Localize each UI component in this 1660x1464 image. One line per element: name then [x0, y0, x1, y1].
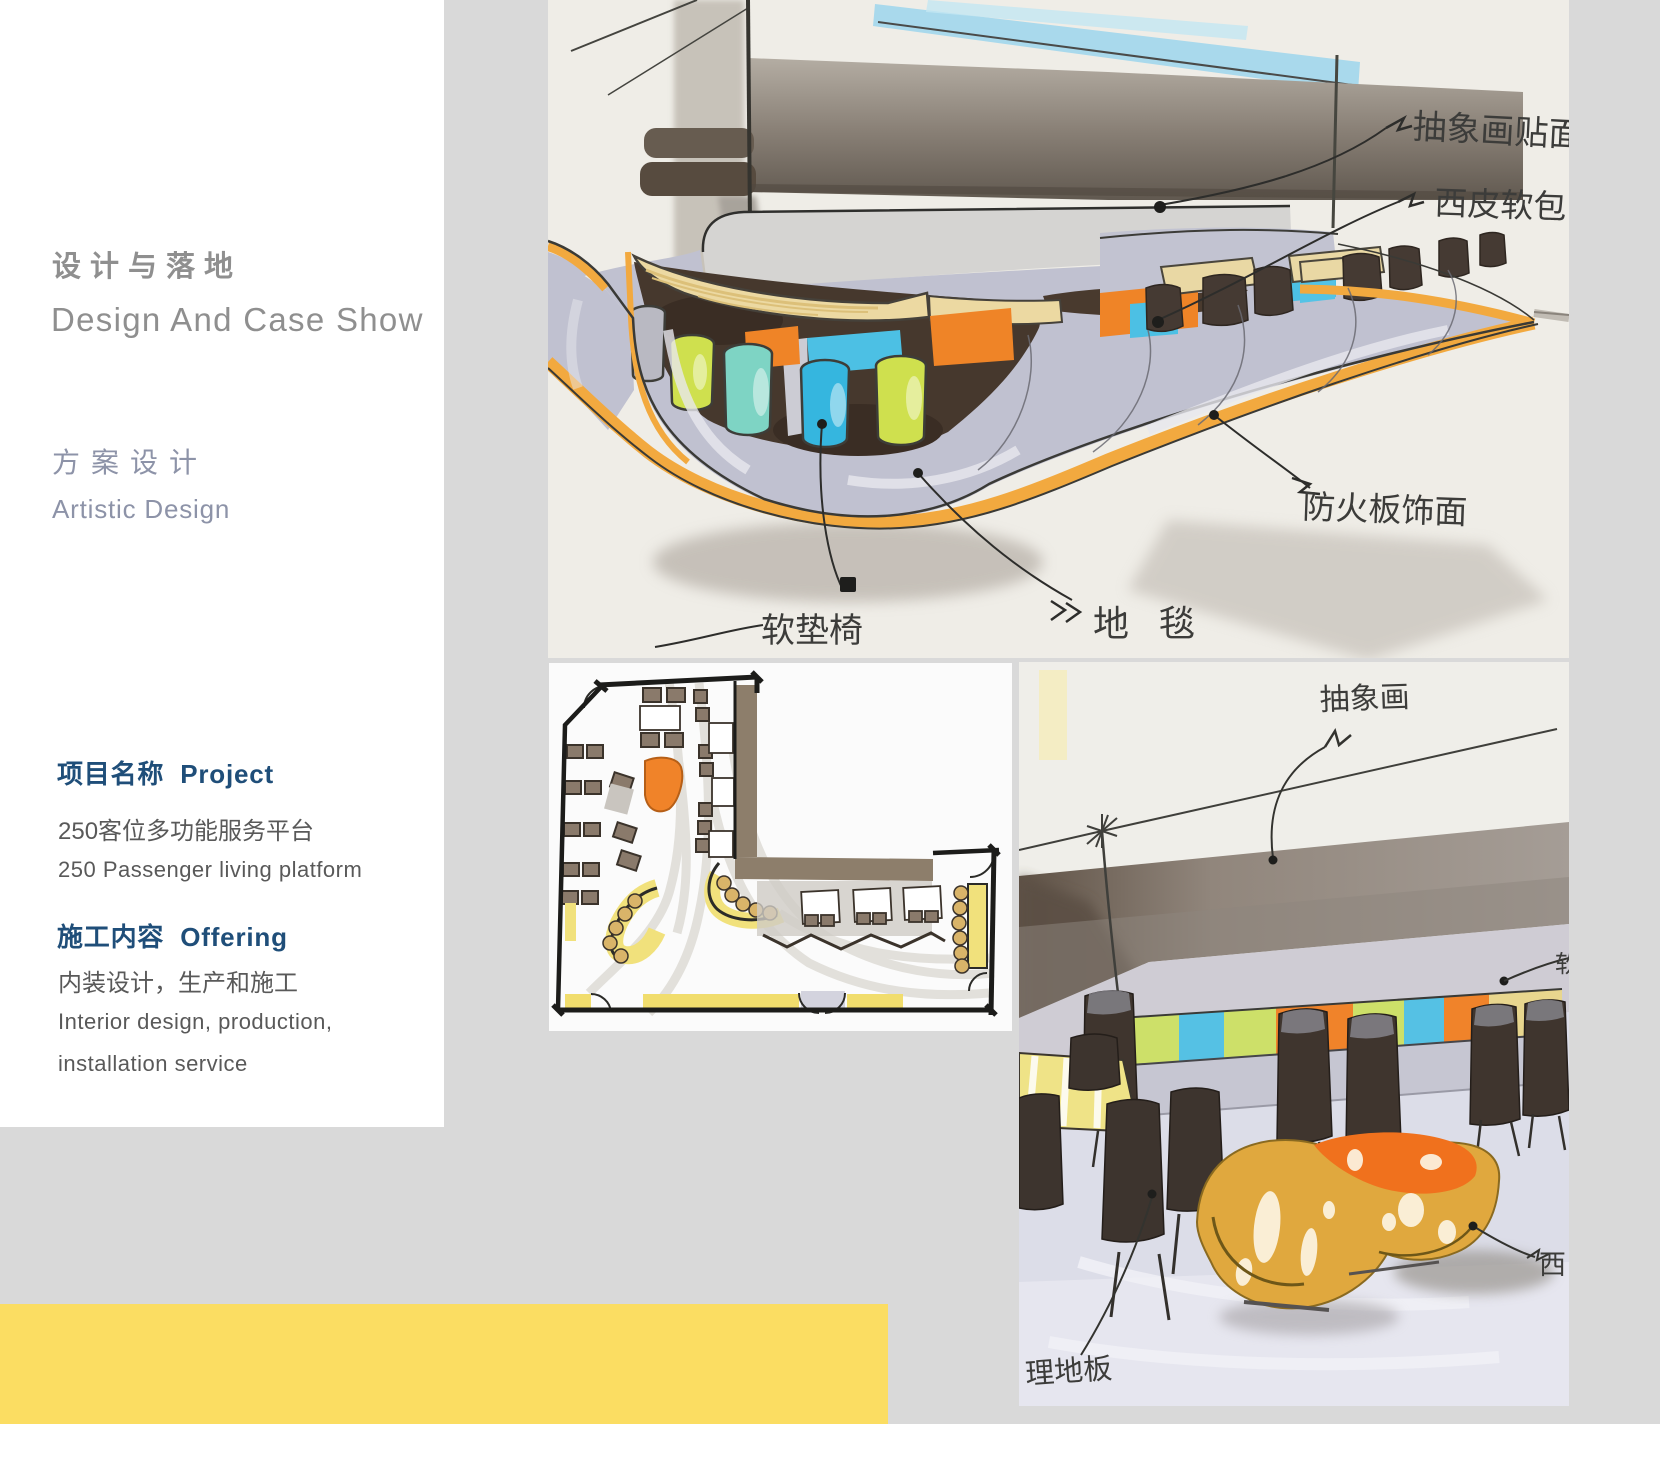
svg-text:地 毯: 地 毯	[1093, 603, 1205, 644]
svg-text:理地板: 理地板	[1024, 1352, 1113, 1391]
svg-text:防火板饰面: 防火板饰面	[1302, 488, 1468, 531]
svg-text:抽象画: 抽象画	[1319, 681, 1410, 717]
svg-text:西: 西	[1539, 1250, 1566, 1280]
svg-text:软垫椅: 软垫椅	[761, 612, 863, 650]
svg-text:西皮软包: 西皮软包	[1434, 184, 1567, 226]
svg-text:软: 软	[1555, 951, 1569, 978]
